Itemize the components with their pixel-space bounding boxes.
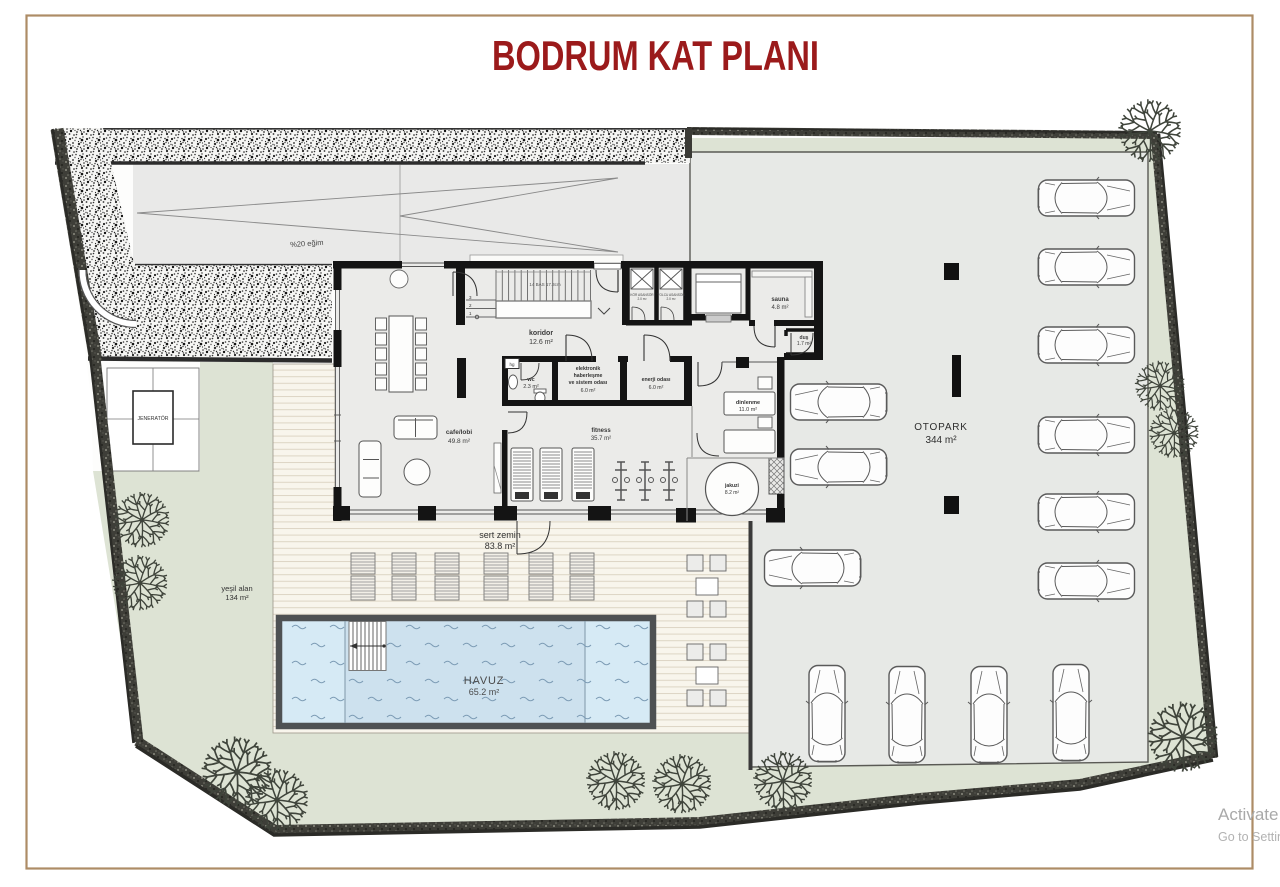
svg-text:haberleşme: haberleşme <box>574 373 603 379</box>
svg-text:1.7 m²: 1.7 m² <box>797 341 812 347</box>
svg-text:sert zemin: sert zemin <box>479 530 521 540</box>
svg-text:enerji odası: enerji odası <box>642 377 671 383</box>
svg-text:sauna: sauna <box>771 297 789 303</box>
svg-text:yeşil alan: yeşil alan <box>221 584 252 593</box>
svg-text:14 BAS 17.3cm: 14 BAS 17.3cm <box>529 282 561 287</box>
svg-text:8.2 m²: 8.2 m² <box>725 490 740 496</box>
svg-text:2.0 m²: 2.0 m² <box>637 297 646 301</box>
svg-text:koridor: koridor <box>529 330 553 337</box>
svg-text:6.0 m²: 6.0 m² <box>581 388 596 394</box>
svg-text:JENERATÖR: JENERATÖR <box>137 415 168 422</box>
svg-text:HAVUZ: HAVUZ <box>464 675 504 687</box>
svg-text:12.6 m²: 12.6 m² <box>529 339 553 346</box>
svg-text:BODRUM KAT PLANI: BODRUM KAT PLANI <box>492 32 819 79</box>
svg-text:83.8 m²: 83.8 m² <box>485 541 516 551</box>
svg-text:dinlenme: dinlenme <box>736 400 760 406</box>
svg-text:134 m²: 134 m² <box>225 593 249 602</box>
svg-text:ve sistem odası: ve sistem odası <box>569 380 608 386</box>
svg-text:jakuzi: jakuzi <box>724 483 740 489</box>
svg-text:Go to Settings to activ: Go to Settings to activ <box>1218 830 1280 844</box>
svg-text:hg: hg <box>509 362 515 367</box>
svg-text:Activate Windows: Activate Windows <box>1218 805 1280 824</box>
svg-text:344 m²: 344 m² <box>925 435 957 446</box>
svg-text:elektronik: elektronik <box>576 366 601 372</box>
svg-text:OTOPARK: OTOPARK <box>914 422 968 433</box>
svg-text:4.8 m²: 4.8 m² <box>771 305 788 311</box>
svg-text:35.7 m²: 35.7 m² <box>591 436 611 442</box>
svg-text:65.2 m²: 65.2 m² <box>469 687 500 697</box>
svg-text:49.8 m²: 49.8 m² <box>448 438 471 445</box>
svg-text:cafe/lobi: cafe/lobi <box>446 429 473 436</box>
svg-text:2.0 m²: 2.0 m² <box>666 297 675 301</box>
svg-text:fitness: fitness <box>591 428 611 434</box>
svg-text:11.0 m²: 11.0 m² <box>739 407 757 413</box>
svg-text:6.0 m²: 6.0 m² <box>649 385 664 391</box>
